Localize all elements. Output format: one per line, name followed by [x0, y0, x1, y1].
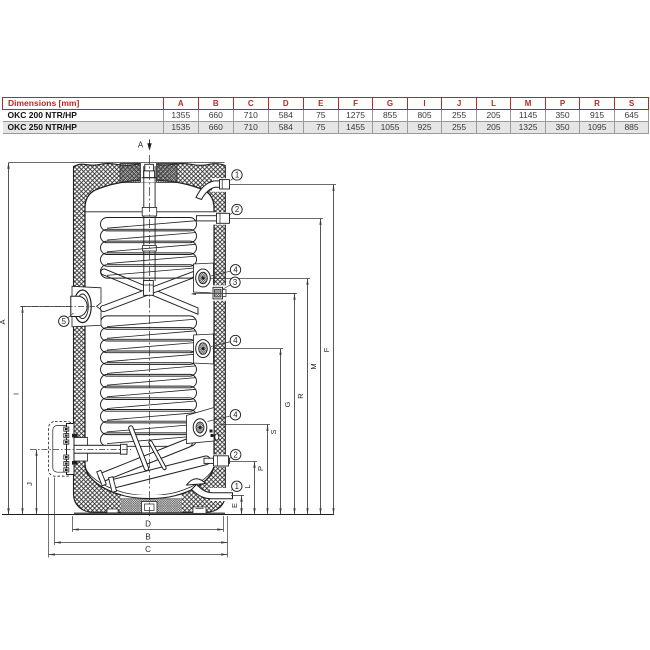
svg-text:5: 5	[62, 317, 67, 326]
svg-text:G: G	[283, 401, 292, 407]
svg-text:2: 2	[234, 450, 238, 459]
svg-text:A: A	[0, 319, 7, 324]
svg-text:P: P	[256, 466, 265, 471]
svg-text:I: I	[12, 393, 21, 395]
svg-text:1: 1	[235, 171, 239, 180]
svg-text:F: F	[322, 347, 331, 352]
svg-text:L: L	[243, 484, 252, 488]
svg-text:4: 4	[233, 266, 238, 275]
svg-text:B: B	[145, 533, 150, 542]
svg-text:E: E	[230, 503, 239, 508]
svg-text:C: C	[145, 545, 151, 554]
svg-text:1: 1	[235, 482, 239, 491]
svg-text:4: 4	[233, 336, 238, 345]
svg-text:S: S	[269, 429, 278, 434]
svg-text:A: A	[138, 141, 144, 150]
svg-text:4: 4	[233, 411, 238, 420]
svg-text:3: 3	[233, 278, 237, 287]
svg-text:2: 2	[235, 205, 239, 214]
svg-text:D: D	[145, 520, 151, 529]
svg-text:M: M	[309, 363, 318, 369]
svg-text:J: J	[25, 482, 34, 486]
svg-text:R: R	[296, 393, 305, 399]
